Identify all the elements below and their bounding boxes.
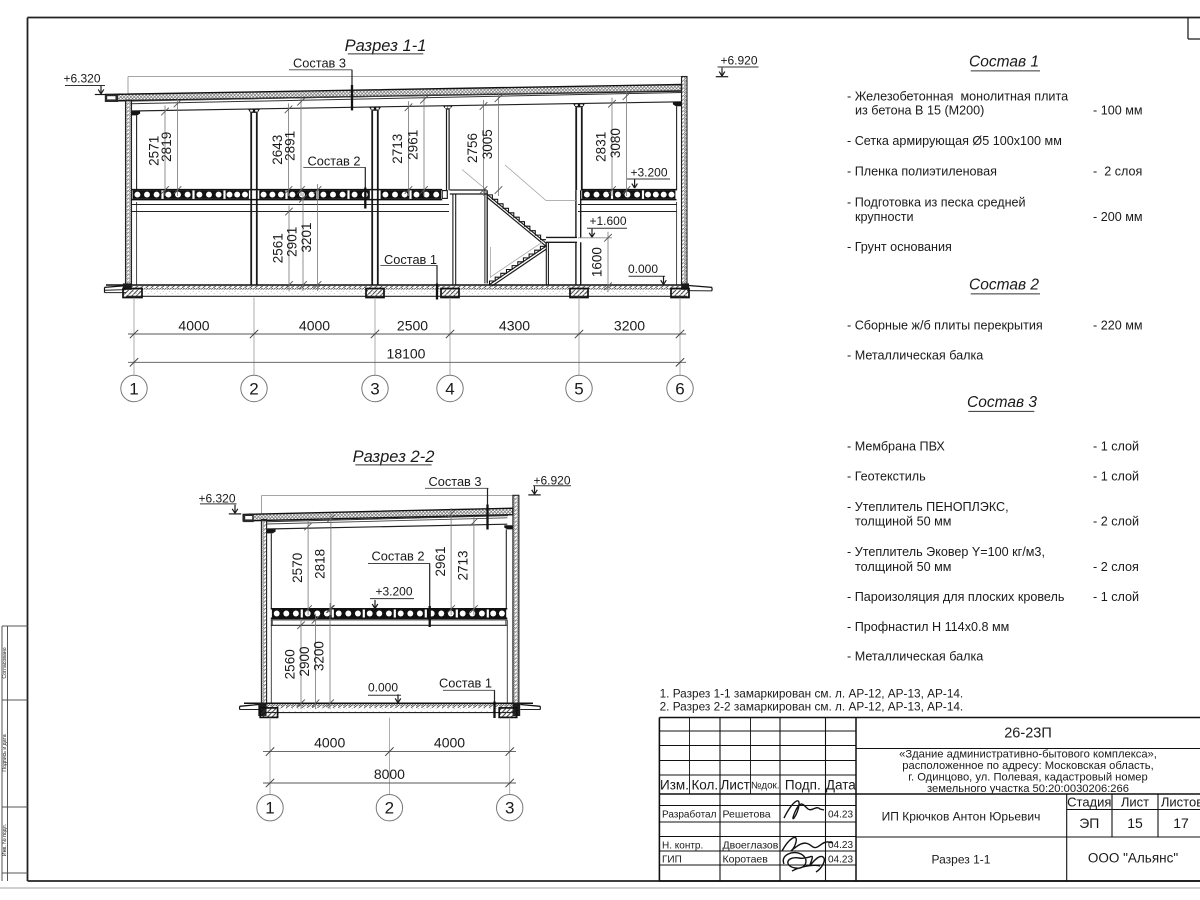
svg-text:Состав 1: Состав 1 — [384, 252, 437, 267]
svg-text:4000: 4000 — [178, 317, 209, 333]
svg-text:3: 3 — [505, 799, 514, 818]
svg-text:2: 2 — [385, 799, 394, 818]
svg-text:- 1 слой: - 1 слой — [1093, 590, 1139, 604]
svg-text:«Здание административно-бытово: «Здание административно-бытового комплек… — [899, 749, 1157, 761]
svg-text:- 100 мм: - 100 мм — [1093, 103, 1143, 117]
svg-text:Состав 1: Состав 1 — [439, 676, 492, 691]
svg-text:Листов: Листов — [1161, 795, 1200, 810]
svg-text:0.000: 0.000 — [368, 681, 398, 695]
svg-text:- 1 слой: - 1 слой — [1093, 439, 1139, 453]
svg-text:Решетова: Решетова — [723, 809, 771, 821]
svg-text:- Профнастил Н 114х0.8 мм: - Профнастил Н 114х0.8 мм — [847, 620, 1009, 634]
svg-text:- Железобетонная монолитная п: - Железобетонная монолитная плита — [847, 89, 1068, 103]
svg-text:Состав 2: Состав 2 — [371, 549, 424, 564]
svg-text:2713: 2713 — [390, 134, 405, 164]
svg-text:Согласовано: Согласовано — [2, 647, 8, 678]
svg-text:- 2 слоя: - 2 слоя — [1093, 164, 1142, 178]
svg-text:4000: 4000 — [299, 317, 330, 333]
svg-text:2961: 2961 — [406, 130, 421, 160]
svg-text:3200: 3200 — [312, 641, 327, 671]
svg-text:Двоеглазов: Двоеглазов — [723, 840, 779, 852]
svg-text:4000: 4000 — [434, 735, 465, 751]
svg-text:Состав 2: Состав 2 — [307, 153, 360, 168]
svg-text:Лист: Лист — [721, 778, 750, 793]
svg-text:- Пароизоляция для плоских кро: - Пароизоляция для плоских кровель — [847, 590, 1065, 604]
svg-text:- Утеплитель Эковер Y=100 кг/м: - Утеплитель Эковер Y=100 кг/м3, — [847, 545, 1045, 559]
svg-text:04.23: 04.23 — [828, 840, 853, 851]
svg-text:+1.600: +1.600 — [589, 214, 626, 228]
svg-text:ИП Крючков Антон Юрьевич: ИП Крючков Антон Юрьевич — [882, 810, 1041, 824]
svg-text:Кол.: Кол. — [691, 778, 718, 793]
svg-text:2818: 2818 — [313, 549, 328, 579]
svg-text:1. Разрез 1-1 замаркирован см.: 1. Разрез 1-1 замаркирован см. л. АР-12,… — [660, 687, 964, 701]
svg-text:Состав 3: Состав 3 — [967, 394, 1037, 411]
svg-text:3201: 3201 — [299, 222, 314, 252]
svg-text:2901: 2901 — [285, 227, 300, 257]
svg-text:2819: 2819 — [159, 132, 174, 162]
svg-text:- Утеплитель ПЕНОПЛЭКС,: - Утеплитель ПЕНОПЛЭКС, — [847, 500, 1009, 514]
svg-text:2891: 2891 — [283, 131, 298, 161]
svg-text:- Грунт основания: - Грунт основания — [847, 240, 952, 254]
svg-text:толщиной 50 мм: толщиной 50 мм — [855, 560, 951, 574]
svg-text:3005: 3005 — [480, 129, 495, 159]
svg-text:Подп.: Подп. — [785, 778, 821, 793]
svg-text:г. Одинцово, ул. Полевая, када: г. Одинцово, ул. Полевая, кадастровый но… — [908, 772, 1147, 784]
svg-text:Лист: Лист — [1121, 795, 1149, 810]
svg-text:5: 5 — [574, 379, 583, 398]
svg-text:Разрез 1-1: Разрез 1-1 — [932, 853, 991, 867]
svg-text:04.23: 04.23 — [828, 810, 853, 821]
svg-text:ООО "Альянс": ООО "Альянс" — [1088, 851, 1178, 866]
svg-text:26-23П: 26-23П — [1004, 726, 1052, 742]
svg-text:2561: 2561 — [271, 233, 286, 263]
svg-text:1: 1 — [265, 799, 274, 818]
svg-text:толщиной 50 мм: толщиной 50 мм — [855, 514, 951, 528]
svg-text:из бетона В 15 (М200): из бетона В 15 (М200) — [855, 103, 984, 117]
svg-text:ГИП: ГИП — [662, 855, 682, 866]
svg-text:- Металлическая балка: - Металлическая балка — [847, 649, 983, 663]
svg-text:расположенное по адресу: Моско: расположенное по адресу: Московская обла… — [902, 760, 1153, 772]
svg-text:Состав 2: Состав 2 — [969, 277, 1039, 294]
svg-text:земельного участка 50:20:00302: земельного участка 50:20:0030206:266 — [927, 783, 1129, 795]
svg-text:3080: 3080 — [608, 128, 623, 158]
svg-text:2831: 2831 — [594, 132, 609, 162]
svg-text:4000: 4000 — [314, 735, 345, 751]
svg-text:Изм.: Изм. — [660, 778, 689, 793]
svg-text:- 2 слоя: - 2 слоя — [1093, 560, 1139, 574]
svg-text:ЭП: ЭП — [1079, 815, 1099, 831]
svg-text:2900: 2900 — [297, 646, 312, 676]
svg-text:Разрез 2-2: Разрез 2-2 — [353, 448, 435, 466]
svg-text:- Сборные ж/б плиты перекрытия: - Сборные ж/б плиты перекрытия — [847, 318, 1043, 332]
svg-text:+6.920: +6.920 — [720, 54, 757, 68]
svg-text:Н. контр.: Н. контр. — [662, 841, 703, 852]
svg-text:18100: 18100 — [387, 345, 426, 361]
svg-text:+6.320: +6.320 — [198, 491, 235, 505]
svg-text:2570: 2570 — [290, 553, 305, 583]
svg-text:2500: 2500 — [397, 317, 428, 333]
svg-text:- 220 мм: - 220 мм — [1093, 318, 1143, 332]
svg-text:+6.920: +6.920 — [533, 473, 570, 487]
svg-text:- Подготовка из песка средней: - Подготовка из песка средней — [847, 196, 1026, 210]
svg-text:Дата: Дата — [826, 778, 856, 793]
svg-text:3200: 3200 — [614, 317, 645, 333]
svg-text:8000: 8000 — [374, 766, 405, 782]
svg-text:04.23: 04.23 — [828, 855, 853, 866]
svg-text:15: 15 — [1127, 815, 1143, 831]
svg-text:- Геотекстиль: - Геотекстиль — [847, 469, 926, 483]
svg-text:0.000: 0.000 — [628, 262, 658, 276]
svg-text:1600: 1600 — [590, 247, 605, 277]
svg-text:Коротаев: Коротаев — [723, 854, 769, 866]
svg-text:Инв. № подл.: Инв. № подл. — [2, 824, 8, 856]
svg-text:Разработал: Разработал — [662, 809, 717, 821]
svg-text:Разрез 1-1: Разрез 1-1 — [345, 37, 427, 55]
svg-text:1: 1 — [129, 379, 138, 398]
svg-text:6: 6 — [675, 379, 684, 398]
svg-text:Состав 3: Состав 3 — [293, 55, 346, 70]
svg-text:- Пленка полиэтиленовая: - Пленка полиэтиленовая — [847, 164, 997, 178]
svg-text:- Металлическая балка: - Металлическая балка — [847, 348, 983, 362]
svg-text:2. Разрез 2-2 замаркирован см.: 2. Разрез 2-2 замаркирован см. л. АР-12,… — [660, 700, 964, 714]
svg-text:- 200 мм: - 200 мм — [1093, 210, 1143, 224]
svg-text:4: 4 — [445, 379, 454, 398]
svg-text:Состав 1: Состав 1 — [969, 54, 1039, 71]
svg-text:2: 2 — [249, 379, 258, 398]
svg-text:Стадия: Стадия — [1067, 795, 1111, 810]
svg-text:№док.: №док. — [751, 781, 780, 792]
svg-text:+6.320: +6.320 — [63, 72, 100, 86]
svg-text:2756: 2756 — [465, 133, 480, 163]
svg-text:- 1 слой: - 1 слой — [1093, 469, 1139, 483]
svg-text:- 2 слой: - 2 слой — [1093, 514, 1139, 528]
svg-text:Состав 3: Состав 3 — [428, 474, 481, 489]
svg-text:2713: 2713 — [456, 550, 471, 580]
svg-text:- Сетка армирующая Ø5 100х100: - Сетка армирующая Ø5 100х100 мм — [847, 134, 1062, 148]
svg-text:Подпись и дата: Подпись и дата — [2, 734, 8, 771]
svg-text:17: 17 — [1173, 815, 1189, 831]
svg-text:4300: 4300 — [499, 317, 530, 333]
svg-text:2961: 2961 — [433, 546, 448, 576]
svg-text:- Мембрана ПВХ: - Мембрана ПВХ — [847, 439, 945, 453]
svg-text:3: 3 — [370, 379, 379, 398]
svg-text:крупности: крупности — [855, 210, 914, 224]
svg-text:+3.200: +3.200 — [630, 166, 667, 180]
svg-text:2560: 2560 — [283, 649, 298, 679]
svg-text:+3.200: +3.200 — [375, 585, 412, 599]
